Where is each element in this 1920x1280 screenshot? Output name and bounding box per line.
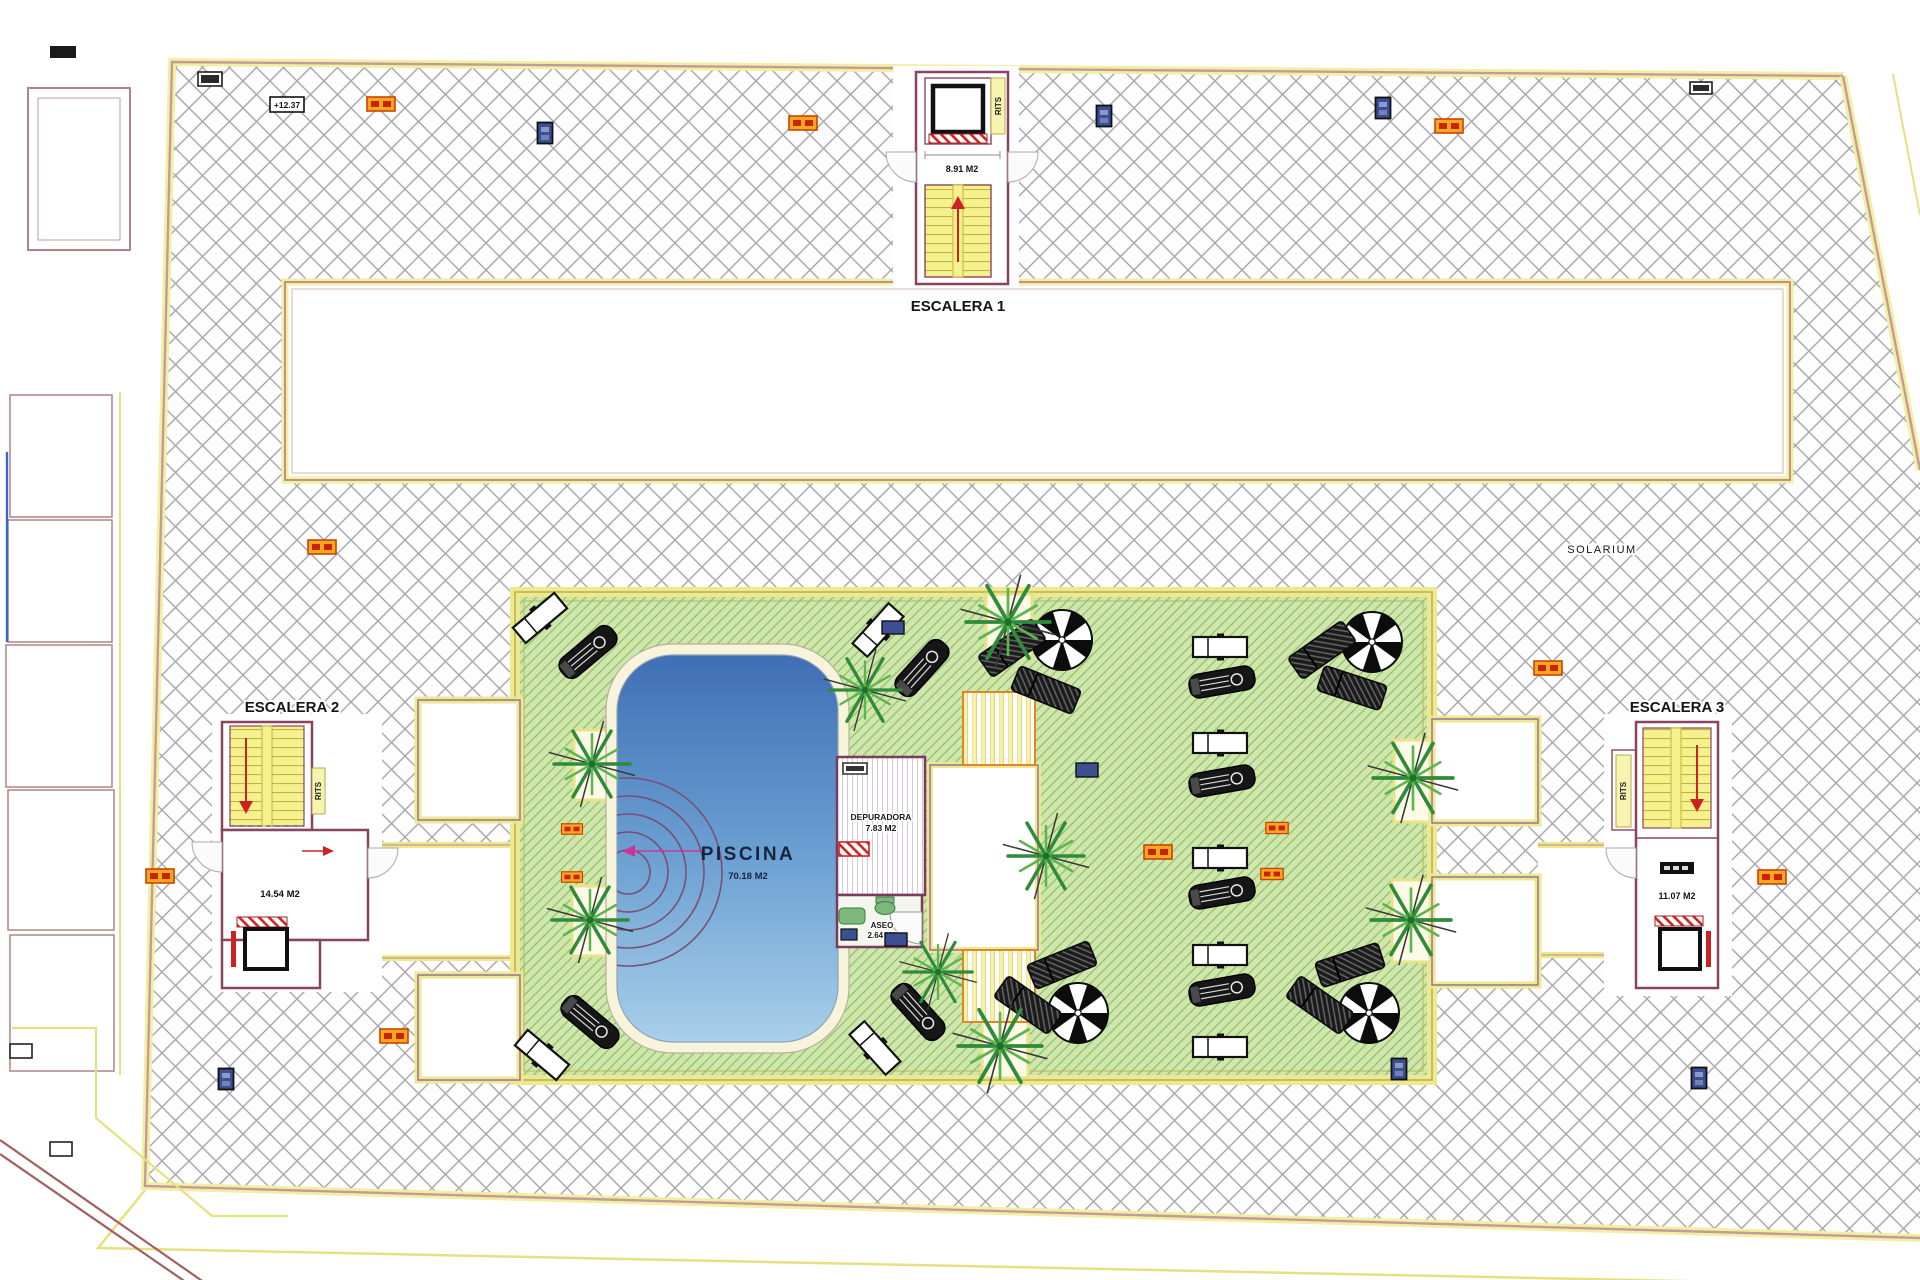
escalera3-title: ESCALERA 3: [1630, 699, 1724, 716]
lounger-icon: [1193, 845, 1247, 872]
solarium-label: SOLARIUM: [1567, 544, 1636, 556]
vent-marker-icon: [1144, 845, 1172, 859]
courtyard-void: [285, 282, 1790, 480]
escalera2-block: RITS 14.54 M2 ESCALERA 2: [192, 699, 398, 992]
elevator-car-icon: [245, 929, 287, 969]
escalera2-title: ESCALERA 2: [245, 699, 339, 716]
drain-marker-icon: [1076, 763, 1098, 777]
steps-north: [963, 692, 1035, 765]
vent-marker-icon: [562, 872, 583, 883]
escalera3-rits-label: RITS: [1619, 781, 1628, 800]
drain-marker-icon: [885, 933, 907, 946]
drain-marker-icon: [1097, 106, 1112, 127]
escalera1-rits-label: RITS: [994, 96, 1003, 115]
lounger-icon: [1193, 1034, 1247, 1061]
lounger-icon: [1193, 634, 1247, 661]
vent-marker-icon: [1266, 822, 1288, 833]
escalera3-area-label: 11.07 M2: [1658, 891, 1695, 901]
vent-marker-icon: [1435, 119, 1463, 133]
vent-marker-icon: [1534, 661, 1562, 675]
lounger-icon: [1193, 942, 1247, 969]
vent-marker-icon: [367, 97, 395, 111]
pump-symbol: [839, 842, 869, 856]
drain-marker-icon: [1392, 1059, 1407, 1080]
roof-plan-drawing: PISCINA 70.18 M2 DEPURADORA 7.83 M2 ASEO…: [0, 0, 1920, 1280]
vent-marker-icon: [789, 116, 817, 130]
vent-marker-icon: [1261, 868, 1283, 879]
sink-icon: [839, 908, 865, 924]
aseo-title: ASEO: [871, 921, 894, 930]
drain-marker-icon: [538, 123, 553, 144]
escalera1-block: RITS 8.91 M2 ESCALERA 1: [886, 66, 1038, 315]
floor-plan-page: PISCINA 70.18 M2 DEPURADORA 7.83 M2 ASEO…: [0, 0, 1920, 1280]
pool-title: PISCINA: [701, 844, 796, 865]
aseo-room: ASEO 2.64 M2: [837, 895, 922, 947]
elevator-car-icon: [933, 86, 983, 132]
escalera2-rits-label: RITS: [314, 781, 323, 800]
escalera1-title: ESCALERA 1: [911, 298, 1005, 315]
depuradora-title: DEPURADORA: [851, 812, 912, 822]
pool-area: 70.18 M2: [728, 871, 768, 882]
elevation-marker: +12.37: [270, 97, 304, 112]
vent-marker-icon: [380, 1029, 408, 1043]
drain-marker-icon: [882, 621, 904, 634]
depuradora-area: 7.83 M2: [866, 823, 897, 833]
vent-marker-icon: [308, 540, 336, 554]
elevation-value: +12.37: [274, 100, 301, 110]
vent-marker-icon: [1758, 870, 1786, 884]
adjacent-structures-west: [6, 88, 130, 1071]
drain-marker-icon: [1376, 98, 1391, 119]
escalera2-area-label: 14.54 M2: [260, 889, 300, 900]
column-marker: [50, 1142, 72, 1156]
drain-marker-icon: [1692, 1068, 1707, 1089]
elevator-car-icon: [1660, 929, 1700, 969]
vent-marker-icon: [146, 869, 174, 883]
escalera3-block: RITS 11.07 M2 ESCALERA 3: [1604, 699, 1732, 996]
column-marker: [10, 1044, 32, 1058]
drain-marker-icon: [219, 1069, 234, 1090]
vent-marker-icon: [562, 824, 583, 835]
lounger-icon: [1193, 730, 1247, 757]
aseo-marker: [841, 929, 857, 940]
escalera1-area-label: 8.91 M2: [946, 164, 979, 174]
depuradora-room: DEPURADORA 7.83 M2: [837, 757, 925, 895]
